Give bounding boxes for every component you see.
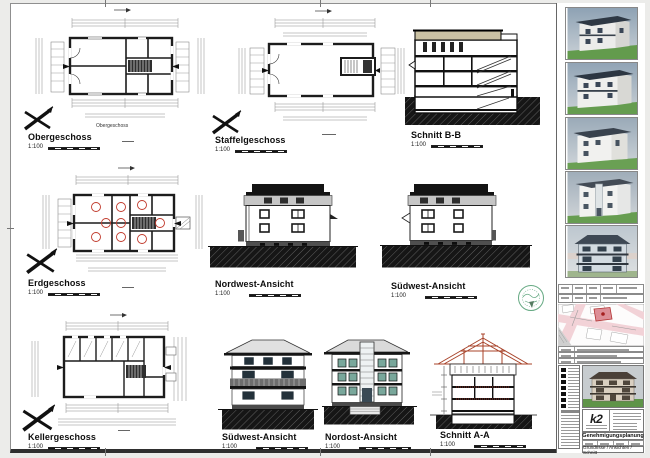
- scale-label: 1:100: [325, 444, 340, 450]
- panel-title-text: Südwest-Ansicht: [222, 433, 308, 442]
- scale-label: 1:100: [222, 444, 237, 450]
- suedwest-ansicht-mitte-drawing: [380, 182, 532, 277]
- legend-panel: [558, 365, 580, 449]
- scale-label: 1:100: [440, 442, 455, 448]
- panel-title-staffelgeschoss: Staffelgeschoss 1:100: [215, 136, 287, 153]
- architect-block: k2: [582, 409, 644, 432]
- scale-bar: [425, 296, 477, 299]
- scale-label: 1:100: [28, 444, 43, 450]
- phase-title-text: Genehmigungsplanung: [582, 433, 643, 439]
- logo-cell: k2: [583, 410, 610, 433]
- title-block-column: k2 Genehmigungsplanung Grundrisse / Ansi…: [556, 3, 645, 453]
- info-value-cell: [575, 359, 643, 363]
- k2-logo: k2: [590, 412, 602, 426]
- legend-lines: [561, 415, 579, 448]
- annotation-mark: [122, 287, 134, 288]
- revision-cell: [587, 295, 601, 302]
- logo-subtext-lines: [586, 425, 607, 431]
- panel-title-schnitt-bb: Schnitt B-B 1:100: [411, 131, 483, 148]
- panel-title-nordwest-ansicht: Nordwest-Ansicht 1:100: [215, 280, 301, 297]
- info-label-cell: [559, 347, 575, 351]
- erdgeschoss-plan-drawing: [38, 165, 208, 277]
- panel-title-text: Südwest-Ansicht: [391, 282, 477, 291]
- annotation-mark: [122, 141, 134, 142]
- render-thumbnail-4: [565, 171, 638, 224]
- revision-cell: [559, 295, 573, 302]
- scale-label: 1:100: [411, 142, 426, 148]
- scale-bar: [235, 150, 287, 153]
- roof-band: [415, 31, 501, 40]
- revision-cell: [573, 295, 587, 302]
- north-arrow-icon: [24, 248, 58, 278]
- scale-bar: [48, 447, 100, 450]
- nordwest-ansicht-drawing: [208, 182, 358, 274]
- info-label-cell: [559, 353, 575, 357]
- swatch-labels: [568, 368, 579, 408]
- revision-cell: [573, 285, 587, 293]
- ground-hatch: [210, 247, 356, 268]
- suedwest-ansicht-unten-drawing: [218, 336, 318, 432]
- content-title-bar: Grundrisse / Ansichten / Schnitt: [582, 446, 644, 453]
- revision-table-row-1: [558, 284, 644, 294]
- panel-title-kellergeschoss: Kellergeschoss 1:100: [28, 433, 100, 450]
- panel-title-text: Nordwest-Ansicht: [215, 280, 301, 289]
- info-label-cell: [559, 359, 575, 363]
- annotation-mark: [118, 430, 130, 431]
- panel-title-obergeschoss: Obergeschoss 1:100: [28, 133, 100, 150]
- site-location-map: [558, 304, 644, 346]
- fold-mark: [105, 448, 106, 456]
- panel-title-nordost-ansicht: Nordost-Ansicht 1:100: [325, 433, 411, 450]
- fold-mark: [320, 0, 321, 7]
- north-arrow-icon: [210, 110, 242, 138]
- render-thumbnail-2: [565, 62, 638, 115]
- panel-title-text: Kellergeschoss: [28, 433, 100, 442]
- render-thumbnail-3: [565, 117, 638, 170]
- contact-lines: [613, 423, 637, 431]
- panel-title-erdgeschoss: Erdgeschoss 1:100: [28, 279, 100, 296]
- panel-title-text: Schnitt B-B: [411, 131, 483, 140]
- north-arrow-icon: [22, 106, 54, 134]
- legend-header-bar: [561, 410, 579, 413]
- approval-stamp-icon: [514, 282, 548, 316]
- panel-title-schnitt-aa: Schnitt A-A 1:100: [440, 431, 526, 448]
- fold-mark: [7, 228, 14, 229]
- revision-cell: [601, 285, 617, 293]
- panel-title-text: Schnitt A-A: [440, 431, 526, 440]
- fold-mark: [430, 0, 431, 7]
- panel-title-text: Erdgeschoss: [28, 279, 100, 288]
- scale-label: 1:100: [391, 293, 406, 299]
- fold-mark: [320, 448, 321, 456]
- scale-bar: [249, 294, 301, 297]
- plan-sheet: Obergeschoss Obergeschoss 1:100: [0, 0, 650, 458]
- scale-label: 1:100: [28, 290, 43, 296]
- obergeschoss-plan-drawing: [30, 6, 210, 124]
- panel-title-text: Obergeschoss: [28, 133, 100, 142]
- render-thumbnail-5: [565, 225, 638, 278]
- material-swatches: [561, 368, 566, 408]
- revision-cell: [601, 295, 643, 302]
- schnitt-bb-drawing: [405, 25, 540, 127]
- annotation-mark: [322, 134, 336, 135]
- ground-hatch: [222, 410, 314, 430]
- info-value-cell: [575, 353, 643, 357]
- revision-cell: [617, 285, 643, 293]
- scale-bar: [474, 445, 526, 448]
- address-lines: [613, 413, 641, 421]
- staffelgeschoss-plan-drawing: [235, 8, 410, 128]
- revision-cell: [587, 285, 601, 293]
- building-photo: [582, 365, 644, 408]
- fold-mark: [430, 448, 431, 456]
- panel-title-suedwest-ansicht-mitte: Südwest-Ansicht 1:100: [391, 282, 477, 299]
- scale-label: 1:100: [215, 291, 230, 297]
- ground-hatch: [382, 246, 530, 268]
- revision-table-row-2: [558, 294, 644, 303]
- revision-cell: [559, 285, 573, 293]
- info-value-cell: [575, 347, 643, 351]
- scale-label: 1:100: [28, 144, 43, 150]
- schnitt-aa-drawing: [430, 330, 537, 430]
- panel-title-text: Staffelgeschoss: [215, 136, 287, 145]
- scale-bar: [431, 145, 483, 148]
- render-thumbnail-1: [565, 7, 638, 60]
- content-title-text: Grundrisse / Ansichten / Schnitt: [583, 445, 643, 455]
- plan-caption: Obergeschoss: [96, 123, 128, 129]
- phase-title-bar: Genehmigungsplanung: [582, 432, 644, 440]
- scale-bar: [359, 447, 411, 450]
- scale-bar: [48, 147, 100, 150]
- roof-rafters: [434, 334, 532, 364]
- scale-bar: [48, 293, 100, 296]
- panel-title-suedwest-ansicht-unten: Südwest-Ansicht 1:100: [222, 433, 308, 450]
- panel-title-text: Nordost-Ansicht: [325, 433, 411, 442]
- scale-label: 1:100: [215, 147, 230, 153]
- scale-bar: [256, 447, 308, 450]
- nordost-ansicht-drawing: [322, 336, 417, 430]
- info-row-client: [558, 358, 644, 364]
